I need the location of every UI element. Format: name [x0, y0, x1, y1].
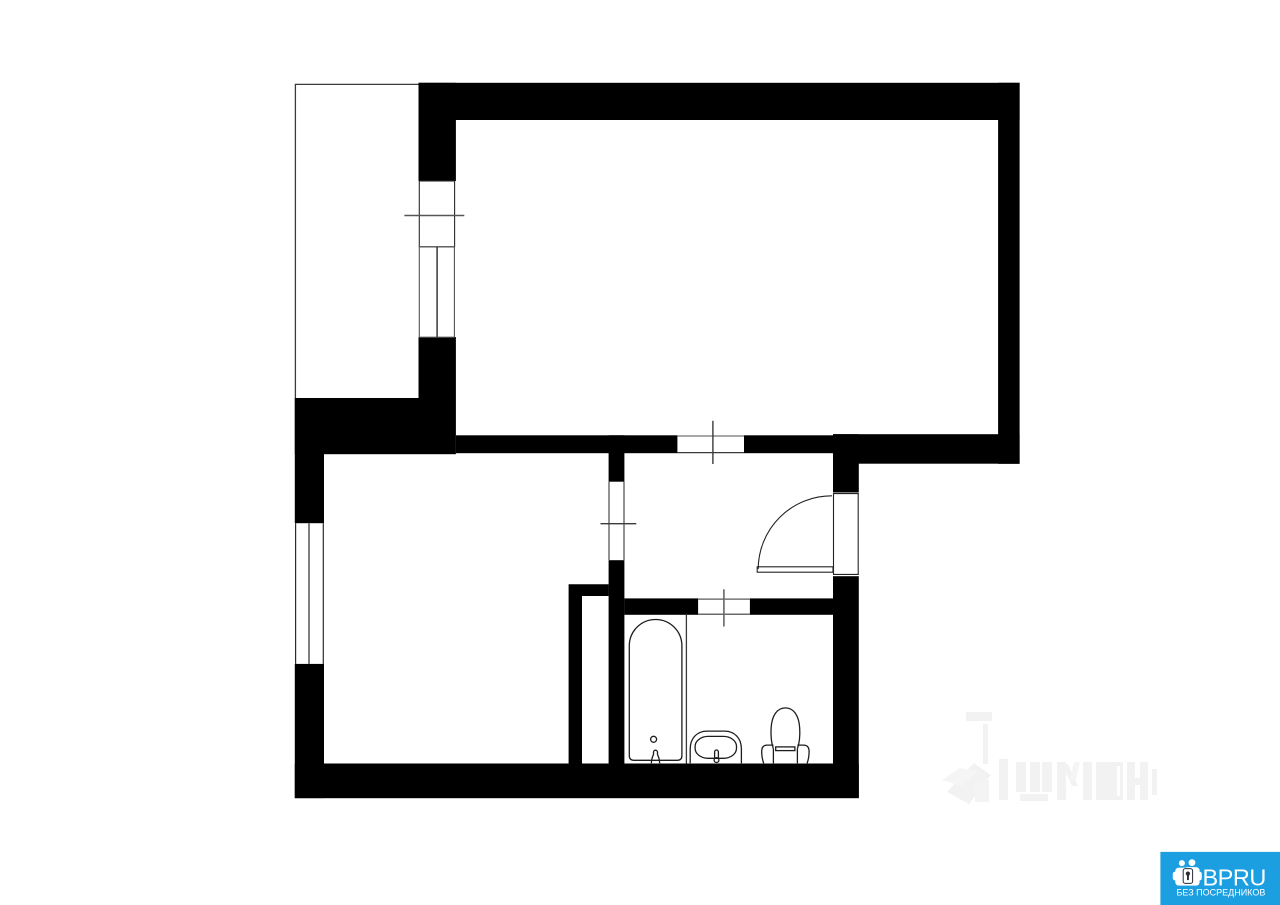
svg-text:БЕЗ ПОСРЕДНИКОВ: БЕЗ ПОСРЕДНИКОВ [1177, 888, 1266, 898]
svg-text:BPRU: BPRU [1203, 865, 1266, 891]
